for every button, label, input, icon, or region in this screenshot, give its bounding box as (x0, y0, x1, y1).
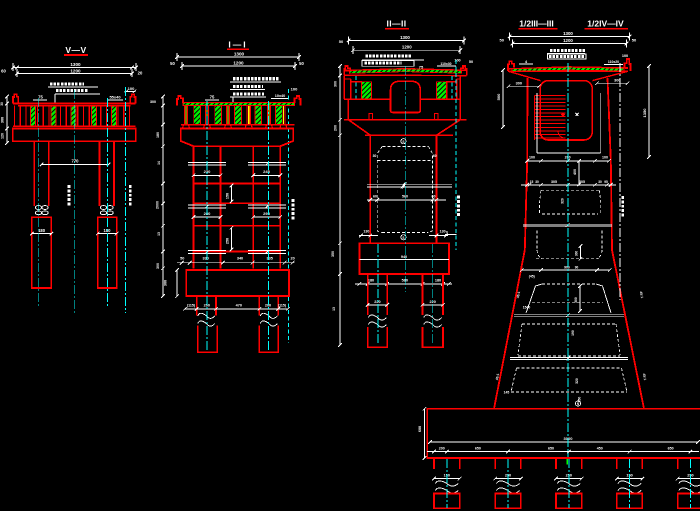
svg-text:S: S (402, 140, 404, 144)
svg-text:230: 230 (204, 169, 211, 174)
svg-text:100: 100 (291, 86, 298, 91)
svg-text:300: 300 (516, 81, 522, 85)
svg-text:300: 300 (575, 251, 579, 257)
svg-text:20: 20 (138, 71, 143, 76)
svg-text:S: S (402, 236, 404, 240)
svg-text:335: 335 (267, 256, 273, 260)
svg-text:650: 650 (668, 447, 674, 451)
svg-text:130: 130 (440, 230, 446, 234)
svg-text:0: 0 (446, 231, 448, 235)
svg-text:1300: 1300 (563, 31, 573, 36)
svg-text:305: 305 (551, 180, 557, 184)
svg-text:1300: 1300 (234, 52, 245, 57)
svg-text:50: 50 (170, 61, 175, 66)
svg-text:300: 300 (150, 100, 156, 104)
svg-text:295: 295 (263, 211, 270, 216)
svg-text:100: 100 (602, 156, 608, 160)
svg-text:130: 130 (363, 230, 369, 234)
svg-text:200: 200 (439, 447, 445, 451)
svg-text:20: 20 (290, 256, 294, 260)
svg-text:14: 14 (157, 161, 161, 165)
svg-text:50: 50 (339, 39, 344, 44)
svg-text:100: 100 (454, 59, 460, 63)
svg-text:1200: 1200 (233, 61, 244, 66)
svg-text:100: 100 (622, 54, 628, 58)
svg-text:350: 350 (331, 251, 335, 257)
svg-text:50: 50 (499, 38, 504, 43)
svg-text:300: 300 (1, 117, 5, 123)
svg-text:50: 50 (180, 256, 184, 260)
svg-text:650: 650 (548, 447, 554, 451)
svg-text:280: 280 (204, 211, 211, 216)
svg-text:1300: 1300 (400, 35, 410, 40)
svg-text:1540: 1540 (523, 306, 531, 310)
svg-text:2000: 2000 (156, 201, 160, 209)
svg-text:770: 770 (72, 158, 80, 163)
svg-text:110x20: 110x20 (608, 60, 619, 64)
svg-text:I—I: I—I (228, 40, 247, 50)
svg-text:110x30: 110x30 (440, 62, 451, 66)
svg-text:450: 450 (597, 447, 603, 451)
svg-text:250: 250 (226, 238, 230, 244)
svg-text:90: 90 (575, 266, 579, 270)
svg-text:180: 180 (38, 228, 46, 233)
svg-text:(115): (115) (187, 303, 196, 307)
svg-text:650: 650 (475, 447, 481, 451)
svg-text:300: 300 (164, 280, 168, 286)
svg-text:(45): (45) (529, 275, 535, 279)
svg-text:245: 245 (263, 169, 270, 174)
svg-text:55x40: 55x40 (109, 95, 121, 100)
svg-text:145: 145 (504, 391, 510, 395)
svg-text:1200: 1200 (563, 38, 573, 43)
svg-text:1200: 1200 (70, 69, 81, 74)
svg-text:320: 320 (561, 198, 565, 204)
svg-text:V—V: V—V (65, 45, 86, 55)
svg-text:100: 100 (128, 86, 135, 91)
svg-text:180: 180 (368, 279, 374, 283)
svg-text:1/2III—III: 1/2III—III (519, 19, 554, 29)
svg-text:190: 190 (571, 330, 575, 336)
svg-text:200: 200 (334, 125, 338, 131)
svg-text:600: 600 (418, 426, 422, 432)
svg-text:180: 180 (156, 132, 160, 138)
svg-text:50: 50 (632, 38, 637, 43)
svg-text:150: 150 (226, 193, 230, 199)
svg-text:940: 940 (401, 255, 407, 259)
svg-text:120: 120 (1, 133, 5, 139)
svg-text:100: 100 (529, 156, 535, 160)
svg-text:1200: 1200 (402, 45, 412, 50)
svg-text:60: 60 (432, 195, 436, 199)
svg-text:10x40: 10x40 (275, 94, 286, 98)
svg-text:1350: 1350 (642, 108, 647, 118)
svg-text:580: 580 (402, 279, 408, 283)
svg-text:95: 95 (604, 180, 608, 184)
svg-text:300: 300 (574, 297, 578, 303)
svg-text:60: 60 (373, 195, 377, 199)
svg-text:30: 30 (373, 154, 377, 158)
svg-text:13: 13 (157, 232, 161, 236)
svg-text:500: 500 (496, 93, 501, 100)
svg-text:200: 200 (265, 303, 271, 307)
svg-text:330: 330 (203, 256, 209, 260)
svg-text:1/2IV—IV: 1/2IV—IV (587, 19, 624, 29)
svg-text:75: 75 (210, 95, 215, 100)
svg-text:1300: 1300 (70, 62, 81, 67)
svg-text:900: 900 (564, 266, 570, 270)
svg-text:340: 340 (237, 256, 243, 260)
svg-text:305: 305 (579, 180, 585, 184)
svg-text:50: 50 (469, 60, 473, 64)
svg-text:470: 470 (236, 303, 242, 307)
svg-text:300: 300 (156, 263, 160, 269)
svg-text:30: 30 (598, 180, 602, 184)
svg-text:320: 320 (575, 378, 579, 384)
svg-text:(115): (115) (278, 303, 287, 307)
svg-text:560: 560 (402, 195, 408, 199)
svg-text:400: 400 (573, 169, 577, 175)
svg-text:50: 50 (299, 61, 304, 66)
svg-text:300: 300 (334, 81, 338, 87)
svg-text:30: 30 (0, 102, 4, 106)
svg-text:180: 180 (435, 279, 441, 283)
svg-text:60: 60 (433, 154, 437, 158)
svg-text:13: 13 (332, 307, 336, 311)
svg-text:II—II: II—II (387, 19, 407, 29)
svg-text:30: 30 (535, 180, 539, 184)
svg-text:60: 60 (1, 69, 6, 74)
